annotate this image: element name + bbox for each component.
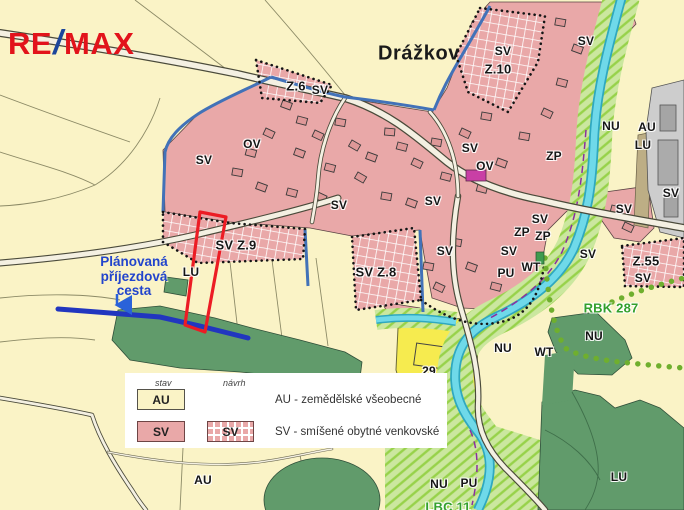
map-label-dr-kov: Drážkov <box>378 43 460 66</box>
map-label-wt: WT <box>534 345 553 359</box>
logo-slash: / <box>53 24 63 62</box>
legend-swatch-sv-navrh: SV <box>207 421 254 442</box>
map-label-ov: OV <box>243 137 261 151</box>
legend-desc-sv: SV - smíšené obytné venkovské <box>275 426 439 438</box>
building <box>335 118 346 127</box>
map-label-lu: LU <box>611 470 627 484</box>
legend-header-stav: stav <box>155 378 172 388</box>
map-label-sv: SV <box>580 247 596 261</box>
map-label-sv: SV <box>495 44 511 58</box>
map-label-lu: LU <box>635 138 651 152</box>
building <box>481 112 492 121</box>
map-label-sv: SV <box>578 34 594 48</box>
map-label-pu: PU <box>460 476 477 490</box>
annotation-line-2: příjezdová <box>100 270 168 285</box>
logo-max: MAX <box>64 26 134 61</box>
map-label-nu: NU <box>494 341 512 355</box>
remax-logo: RE/MAX <box>8 24 134 63</box>
map-label-au: AU <box>194 473 212 487</box>
map-label-z-6: Z.6 <box>286 79 305 94</box>
map-label-pu: PU <box>497 266 514 280</box>
building <box>232 168 243 177</box>
building <box>381 192 392 201</box>
map-label-rbk-287: RBK 287 <box>584 301 639 316</box>
legend-desc-au: AU - zemědělské všeobecné <box>275 394 421 406</box>
map-label-sv: SV <box>331 198 347 212</box>
building <box>555 18 566 27</box>
map-label-sv: SV <box>462 141 478 155</box>
legend-swatch-sv-stav: SV <box>137 421 185 442</box>
map-label-zp: ZP <box>514 225 530 239</box>
map-label-sv: SV <box>663 186 679 200</box>
map-label-sv: SV <box>616 202 632 216</box>
map-label-lbc-11: LBC 11 <box>425 500 470 510</box>
map-label-zp: ZP <box>535 229 551 243</box>
map-label-ov: OV <box>476 159 494 173</box>
annotation-line-1: Plánovaná <box>100 255 168 270</box>
map-label-z-55: Z.55 <box>633 254 660 269</box>
map-label-sv-z-9: SV Z.9 <box>216 238 257 253</box>
legend: stav návrh AU AU - zemědělské všeobecné … <box>125 373 447 448</box>
map-label-nu: NU <box>602 119 620 133</box>
map-label-nu: NU <box>585 329 603 343</box>
map-label-au: AU <box>638 120 656 134</box>
legend-swatch-au: AU <box>137 389 185 410</box>
building <box>423 262 434 271</box>
building <box>384 128 395 136</box>
map-label-sv-z-8: SV Z.8 <box>356 265 397 280</box>
map-label-wt: WT <box>521 260 540 274</box>
map-label-sv: SV <box>635 271 651 285</box>
map-label-sv: SV <box>501 244 517 258</box>
annotation-line-3: cesta <box>100 284 168 299</box>
planned-road-annotation: Plánovaná příjezdová cesta <box>100 255 168 299</box>
map-label-lu: LU <box>183 265 199 279</box>
map-label-sv: SV <box>425 194 441 208</box>
map-label-sv: SV <box>437 244 453 258</box>
zoning-map: DrážkovZ.6SVSVZ.10SVOVSVSVSVOVZPSVSVZPZP… <box>0 0 684 510</box>
map-label-sv: SV <box>196 153 212 167</box>
logo-re: RE <box>8 26 52 61</box>
legend-header-navrh: návrh <box>223 378 246 388</box>
map-label-z-10: Z.10 <box>485 62 512 77</box>
map-label-nu: NU <box>430 477 448 491</box>
map-label-zp: ZP <box>546 149 562 163</box>
map-label-sv: SV <box>312 83 328 97</box>
map-label-sv: SV <box>532 212 548 226</box>
building <box>519 132 530 141</box>
